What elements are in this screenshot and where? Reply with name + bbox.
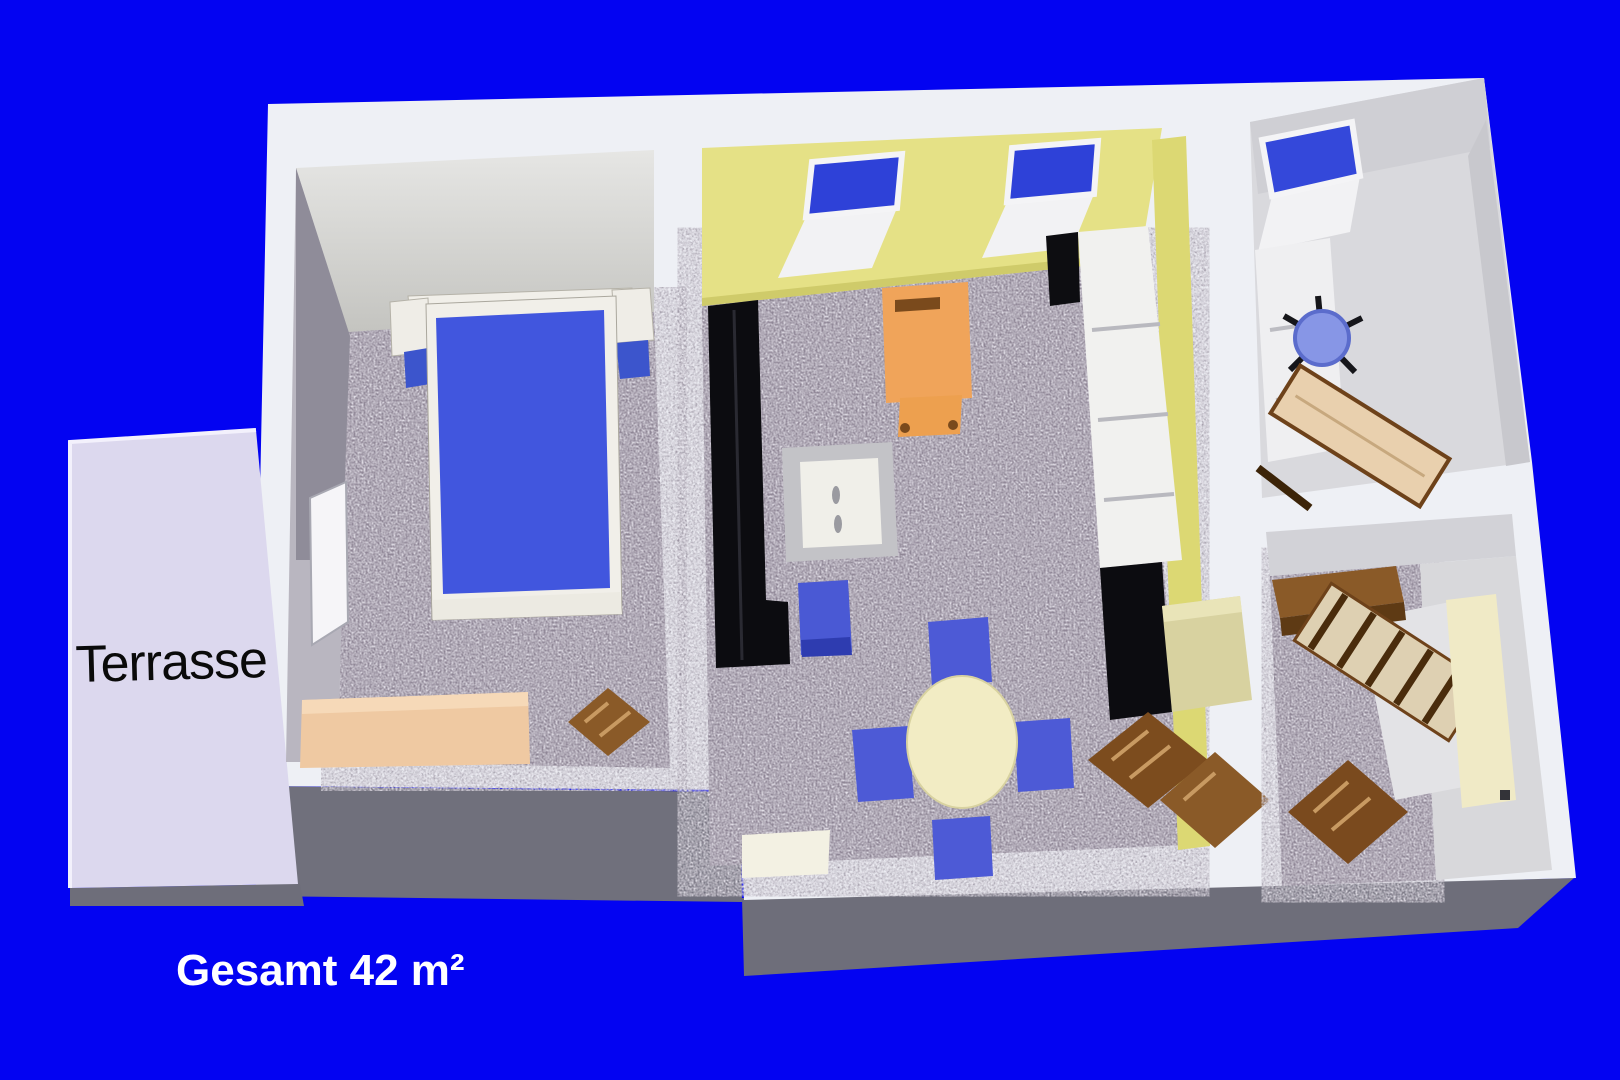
bed-corner-right xyxy=(616,340,650,379)
table-detail xyxy=(832,486,840,504)
square-table-top xyxy=(800,458,882,548)
kitchen-black-upper xyxy=(1046,232,1080,306)
table-detail xyxy=(834,515,842,533)
office-chair-seat xyxy=(1295,311,1349,365)
stool-side xyxy=(801,637,852,657)
dining-chair-west xyxy=(852,726,914,802)
bedroom xyxy=(286,150,670,768)
south-wall-step xyxy=(742,830,830,878)
nightstand-right xyxy=(612,288,654,343)
terrace-label: Terrasse xyxy=(75,631,268,694)
window-glass xyxy=(1007,141,1098,202)
white-square-table xyxy=(782,442,898,562)
bedroom-door xyxy=(310,482,348,645)
bedroom-south-wall-shadow xyxy=(254,786,742,902)
armchair-foot xyxy=(948,420,958,430)
second-room xyxy=(1266,514,1552,886)
window-glass xyxy=(806,154,902,217)
dining-chair-east xyxy=(1014,718,1074,792)
nightstand-left xyxy=(390,298,430,356)
dining-table xyxy=(907,676,1017,808)
dresser xyxy=(300,692,530,768)
bed-corner-left xyxy=(404,348,430,388)
kitchen-black-cabinet xyxy=(1100,562,1172,720)
dining-chair-south xyxy=(932,816,993,880)
living-room xyxy=(702,128,1270,880)
blue-stool xyxy=(798,580,852,657)
cabinet-foot xyxy=(1500,790,1510,800)
floor-plan-canvas: Terrasse xyxy=(0,0,1620,1080)
armchair-foot xyxy=(900,423,910,433)
total-area-label: Gesamt 42 m² xyxy=(176,946,465,995)
floor-plan-rendering: Terrasse xyxy=(0,0,1620,1080)
office-room xyxy=(1250,78,1530,508)
bed-blanket xyxy=(436,310,610,594)
